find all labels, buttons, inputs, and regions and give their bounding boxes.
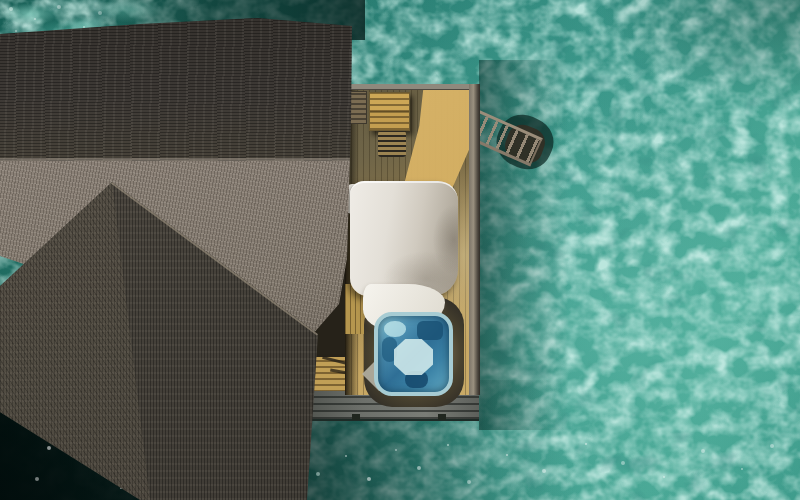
aerial-villa-photo (0, 0, 800, 500)
hot-tub (374, 312, 453, 396)
sun-deck (345, 84, 480, 395)
water-sparkles-topleft (0, 0, 2, 2)
tub-center-light (394, 339, 434, 375)
tub-glint (384, 321, 405, 336)
deck-top-trim (345, 84, 480, 90)
pergola-box (369, 92, 410, 131)
deck-post (438, 414, 446, 420)
deck-post (352, 414, 360, 420)
sun-lounger (378, 131, 406, 157)
tub-seat (417, 321, 443, 339)
deck-edge-trim (469, 84, 480, 395)
canopy-daybed (350, 181, 458, 296)
